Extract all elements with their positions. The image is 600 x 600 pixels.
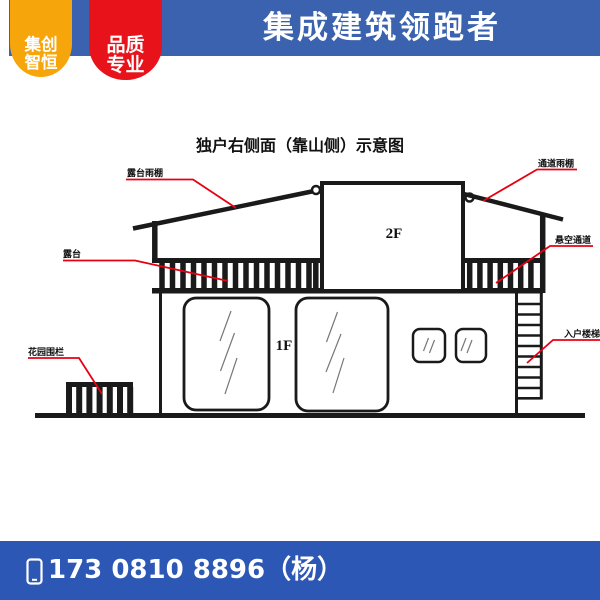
terrace-railing-bars	[162, 263, 316, 288]
second-floor-label: 2F	[386, 226, 403, 242]
leader-entry-stairs	[527, 340, 600, 363]
phone-number: 173 0810 8896（杨）	[48, 541, 343, 600]
window-small-1	[413, 329, 445, 362]
suspended-passage-railing	[463, 261, 543, 289]
entry-ladder	[516, 293, 541, 400]
house-side-elevation-diagram: 独户右侧面（靠山侧）示意图 2F	[0, 0, 600, 600]
window-large-2	[296, 298, 388, 411]
passage-railing-bars	[470, 263, 531, 288]
mobile-phone-icon	[26, 558, 43, 586]
left-roof-joint-circle	[312, 186, 320, 194]
diagram-title: 独户右侧面（靠山侧）示意图	[196, 136, 404, 155]
callout-suspended-passage: 悬空通道	[554, 234, 591, 245]
first-floor-label: 1F	[276, 338, 293, 354]
callout-passage-canopy: 通道雨棚	[538, 158, 574, 169]
window-small-2	[456, 329, 486, 362]
terrace-railing	[152, 261, 320, 289]
callout-terrace: 露台	[63, 248, 81, 259]
callout-terrace-canopy: 露台雨棚	[127, 167, 163, 178]
callout-entry-stairs: 入户楼梯	[563, 328, 600, 339]
leader-terrace-canopy	[126, 180, 236, 209]
passage-canopy-roof	[464, 194, 563, 220]
terrace-canopy-roof	[133, 190, 319, 229]
leader-passage-canopy	[483, 170, 577, 202]
product-image: 集创 智恒 品质 专业 集成建筑领跑者 独户右侧面（靠山侧）示意图 2F	[0, 0, 600, 600]
entry-ladder-rungs	[516, 304, 541, 398]
callout-garden-fence: 花园围栏	[28, 346, 64, 357]
